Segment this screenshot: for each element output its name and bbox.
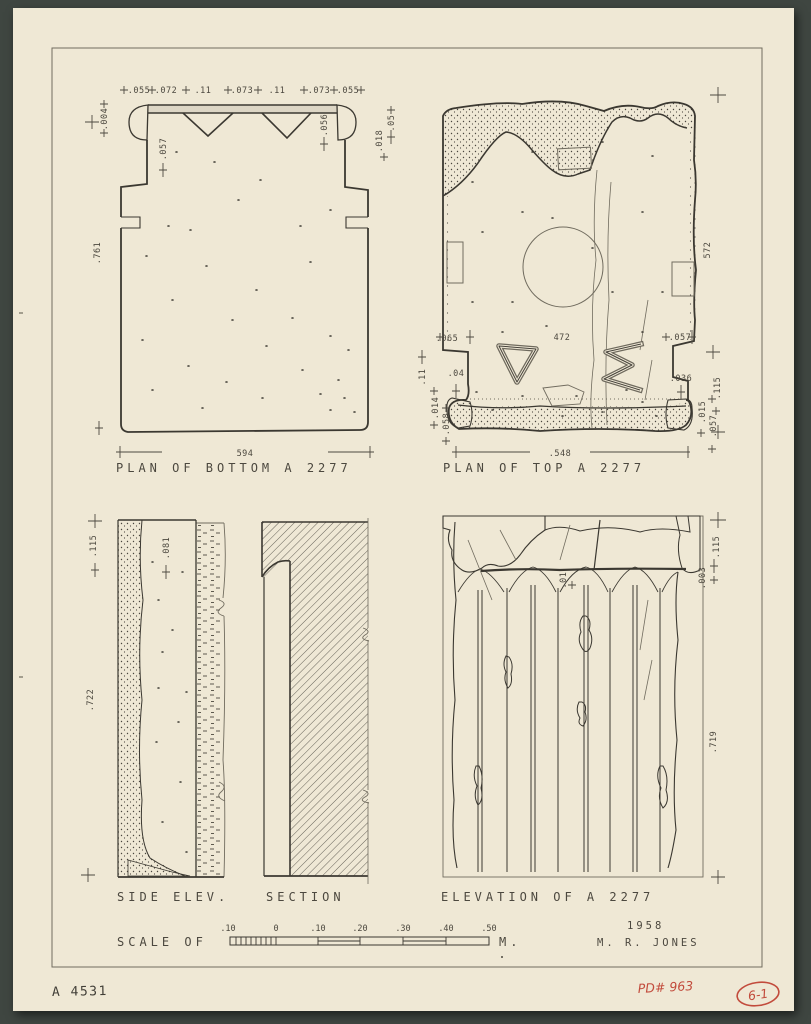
dim-center: 472: [554, 333, 571, 343]
scale-tick-1: .10: [220, 924, 235, 934]
stray-dot: [501, 956, 503, 958]
scale-tick-3: .10: [310, 924, 325, 934]
scale-tick-2: 0: [273, 924, 278, 934]
broken-top-strip: [545, 516, 690, 532]
corner-right-hatched: [337, 105, 356, 140]
drawing-canvas: .055 .072 .11 .073 .11 .073 .055 .004 .0…: [0, 0, 811, 1024]
dim-width: .548: [549, 449, 571, 459]
dim-right-corner: .057: [709, 415, 719, 437]
surface-specks: [142, 152, 355, 412]
dim-left-corner: .058: [442, 413, 452, 435]
catalog-number: A 4531: [52, 984, 108, 1000]
dim-top-6: .073: [308, 86, 330, 96]
dim-height: .719: [709, 731, 719, 753]
tooled-band: [197, 524, 223, 876]
year-label: 1958: [627, 920, 664, 932]
section-drawing: SECTION: [262, 518, 369, 904]
bottom-band-inner-line: [458, 405, 686, 408]
preserved-top-line: [481, 569, 686, 571]
weathered-band-stipple: [118, 520, 185, 877]
section-title: SECTION: [266, 890, 345, 904]
dim-height: 572: [703, 242, 713, 259]
dim-top: .115: [712, 536, 722, 558]
plate-number-text: 6-1: [747, 986, 769, 1004]
crack-line: [594, 520, 600, 570]
scale-unit: M.: [499, 935, 521, 949]
surface-specks: [152, 562, 187, 852]
section-hatch: [262, 522, 368, 876]
dim-height: .722: [86, 689, 96, 711]
dim-left-inner: .057: [159, 138, 169, 160]
scale-tick-6: .40: [438, 924, 453, 934]
plan-of-bottom-drawing: .055 .072 .11 .073 .11 .073 .055 .004 .0…: [85, 86, 397, 475]
scale-bar-divisions: [236, 937, 446, 945]
center-circle-cutting: [523, 227, 603, 307]
dim-top-3: .11: [195, 86, 212, 96]
dim-top: .115: [89, 535, 99, 557]
dim-left-lower: .014: [431, 397, 441, 419]
dim-step-right: .057: [669, 333, 691, 343]
dim-step-left: .065: [436, 334, 458, 344]
dim-height: .761: [93, 242, 103, 264]
credits: 1958 M. R. JONES: [597, 920, 700, 949]
side-notches: [121, 217, 368, 228]
dim-inner: .01: [559, 572, 569, 589]
scratch-lines: [468, 525, 652, 700]
dim-right-lower: .015: [698, 401, 708, 423]
plan-of-top-drawing: .065 472 .057 .04 .036 .11 .014 .058 .11…: [418, 87, 726, 475]
dim-top-5: .11: [269, 86, 286, 96]
mason-mark-triangle: [499, 346, 536, 382]
dim-right-edge: .05: [387, 115, 397, 132]
dim-left-edge: .004: [100, 108, 110, 130]
elevation-title: ELEVATION OF A 2277: [441, 890, 654, 904]
dim-left-edge: .11: [418, 369, 428, 386]
pd-number-stamp: PD# 963: [637, 978, 693, 996]
scale-tick-4: .20: [352, 924, 367, 934]
dim-right-lower: .018: [375, 130, 385, 152]
scale-tick-7: .50: [481, 924, 496, 934]
dimension-ticks: [85, 86, 395, 458]
dim-top-1: .055: [128, 86, 150, 96]
spall-patches: [474, 616, 667, 808]
broken-top-left: [443, 516, 545, 572]
rim-band: [148, 105, 337, 113]
side-elev-title: SIDE ELEV.: [117, 890, 229, 904]
sheet-frame: [52, 48, 762, 967]
dim-right-inner: .056: [320, 114, 330, 136]
surface-specks: [472, 142, 663, 416]
dim-top-7: .055: [337, 86, 359, 96]
dim-right: .036: [670, 374, 692, 384]
dim-width: 594: [237, 449, 254, 459]
dim-top-4: .073: [231, 86, 253, 96]
scale-prefix: SCALE OF: [117, 935, 207, 949]
side-elevation-drawing: .115 .081 .722 SIDE ELEV.: [81, 514, 229, 904]
plan-bottom-title: PLAN OF BOTTOM A 2277: [116, 461, 352, 475]
corner-left-hatched: [129, 105, 148, 140]
plan-bottom-outline: [121, 140, 368, 432]
scale-bar: SCALE OF .10 0 .10 .20 .30 .40 .50 M.: [117, 924, 521, 958]
broken-top-stipple: [443, 101, 697, 196]
plate-number-stamp: 6-1: [736, 980, 781, 1009]
elevation-drawing: .115 .003 .01 .719 ELEVATION OF A 2277: [441, 512, 726, 904]
scale-tick-5: .30: [395, 924, 410, 934]
dim-edge: .003: [698, 567, 708, 589]
right-edge-broken: [223, 523, 225, 877]
dim-right-edge: .115: [713, 377, 723, 399]
flute-lines: [478, 585, 660, 872]
broken-top-right: [676, 516, 700, 573]
dim-left: .04: [448, 369, 465, 379]
dim-inner: .081: [162, 537, 172, 559]
plan-top-title: PLAN OF TOP A 2277: [443, 461, 645, 475]
mason-mark-m: [604, 344, 641, 390]
dim-top-2: .072: [155, 86, 177, 96]
author-label: M. R. JONES: [597, 937, 700, 949]
scanned-drawing-sheet: .055 .072 .11 .073 .11 .073 .055 .004 .0…: [0, 0, 811, 1024]
small-spall-outline: [543, 385, 584, 406]
margin-registration-marks: [19, 313, 23, 677]
v-notches: [183, 113, 311, 138]
